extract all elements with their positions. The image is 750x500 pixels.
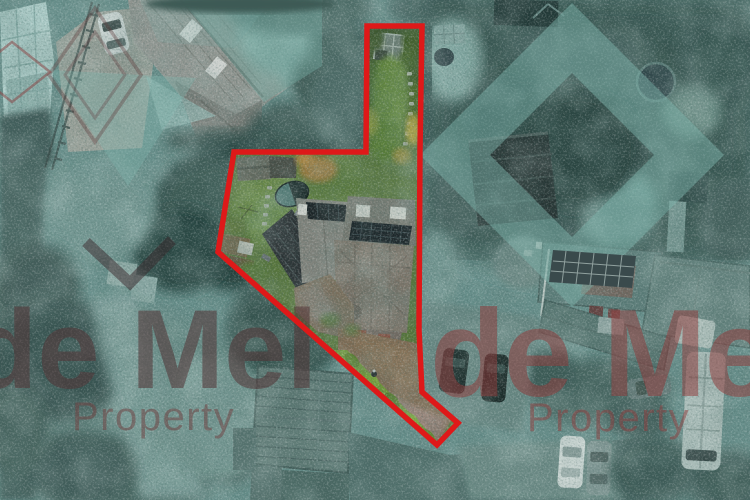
svg-text:Property: Property: [527, 396, 690, 440]
svg-text:de Mel: de Mel: [0, 287, 318, 412]
svg-text:Property: Property: [72, 395, 235, 439]
